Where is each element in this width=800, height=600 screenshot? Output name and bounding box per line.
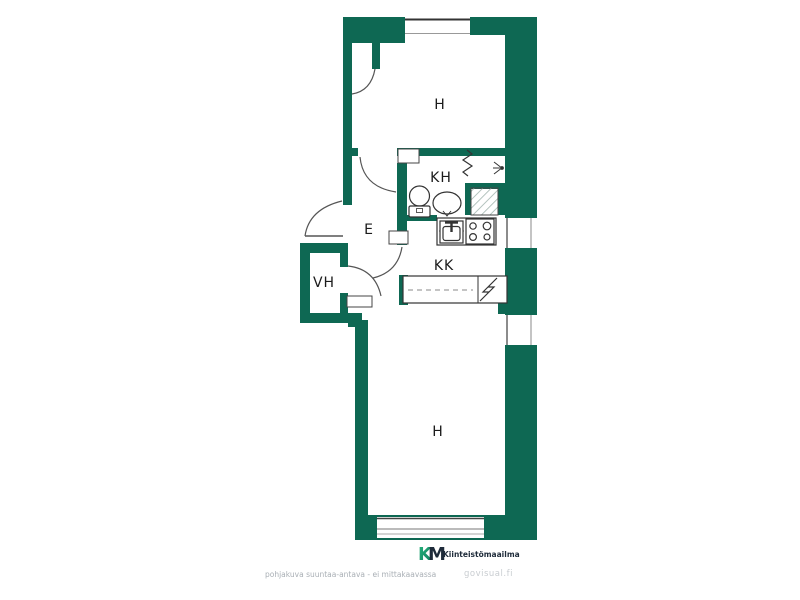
wall-right [505, 35, 537, 515]
room-label-h-top: H [434, 97, 446, 113]
vh-door-arc [348, 266, 381, 296]
floorplan-image: H KH E VH KK H K M Kiinteistömaailma gov… [0, 0, 800, 600]
room-label-kh: KH [430, 170, 452, 186]
wall-kk-h-right [498, 303, 537, 314]
wall-shower-left [465, 187, 471, 215]
wall-closet-stub [372, 43, 380, 69]
lower-counter [403, 276, 507, 303]
right-kitchen-window [505, 218, 537, 248]
disclaimer-text: pohjakuva suuntaa-antava - ei mittakaava… [265, 570, 436, 579]
right-lower-window-opening [505, 315, 537, 345]
watermark-text: govisual.fi [464, 569, 513, 579]
h-top-door-arc [360, 157, 396, 192]
closet-door-arc [352, 69, 375, 94]
wall-mid-left [343, 148, 358, 156]
wall-left-upper [343, 17, 352, 205]
h-bottom-door-jamb [347, 296, 372, 307]
logo-brand-text: Kiinteistömaailma [443, 550, 520, 559]
entry-door-arc [305, 201, 342, 236]
wall-vh-right-upper [340, 243, 348, 267]
shower-area [471, 188, 498, 215]
wall-vh-left [300, 243, 310, 323]
toilet-icon [409, 186, 430, 217]
kk-door-arc [373, 247, 402, 278]
right-lower-window [505, 315, 537, 345]
wall-top-right [470, 17, 537, 35]
wall-shower-right [498, 183, 506, 215]
wall-left-lower [355, 330, 368, 520]
right-kitchen-window-opening [505, 218, 537, 248]
washbasin-icon [433, 192, 461, 216]
room-label-e: E [364, 222, 374, 238]
wall-top-left [343, 17, 405, 43]
bottom-window-opening [377, 517, 484, 538]
shower-head-icon [493, 162, 503, 174]
km-logo: K M Kiinteistömaailma [418, 544, 520, 565]
bottom-window [377, 517, 484, 538]
floorplan-svg: H KH E VH KK H K M Kiinteistömaailma gov… [0, 0, 800, 600]
room-label-h-bottom: H [432, 424, 444, 440]
room-label-vh: VH [313, 275, 335, 291]
kh-door-jamb [398, 149, 419, 163]
kitchen-fixtures [403, 218, 507, 303]
stove-icon [466, 219, 494, 244]
kk-door-jamb [389, 231, 408, 244]
footer: K M Kiinteistömaailma govisual.fi pohjak… [265, 544, 520, 579]
room-label-kk: KK [434, 258, 454, 274]
kitchen-sink-icon [440, 221, 463, 243]
wall-step-2 [355, 320, 368, 345]
top-window [405, 17, 470, 35]
